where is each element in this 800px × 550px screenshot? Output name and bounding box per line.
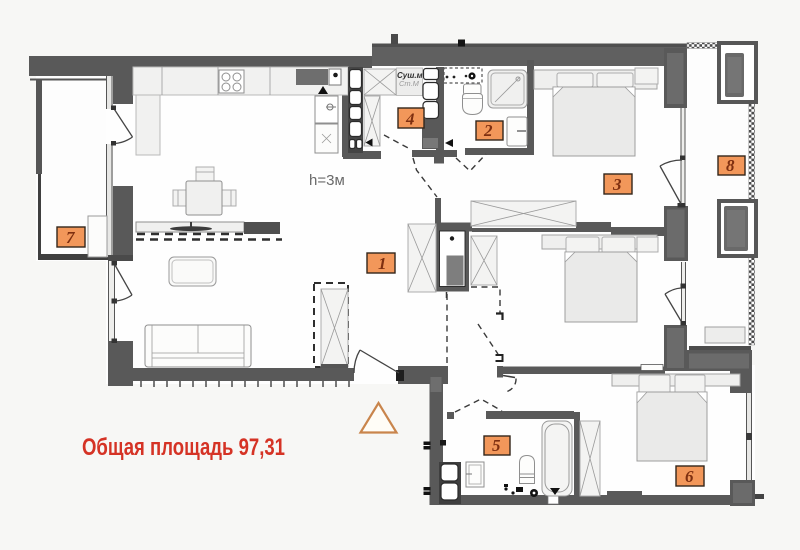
svg-text:3: 3 [612, 175, 622, 194]
svg-text:2: 2 [483, 121, 493, 140]
svg-text:8: 8 [726, 156, 735, 175]
svg-text:4: 4 [405, 110, 415, 129]
svg-text:h=3м: h=3м [309, 172, 345, 189]
svg-text:1: 1 [378, 254, 387, 273]
svg-text:5: 5 [492, 436, 501, 455]
svg-text:Ст.М: Ст.М [399, 79, 420, 88]
svg-text:6: 6 [685, 467, 694, 486]
svg-text:Общая площадь 97,31: Общая площадь 97,31 [82, 434, 285, 461]
